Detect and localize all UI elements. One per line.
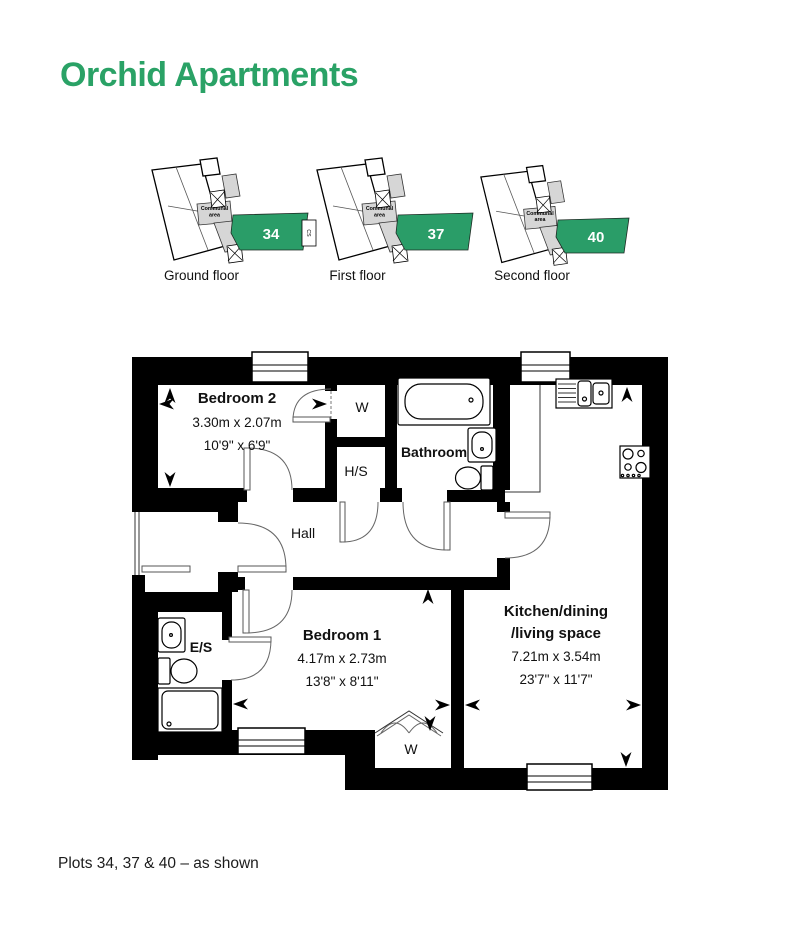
plot-number: 37 <box>428 226 445 243</box>
locator-first-floor: Communal area 37 First floor <box>317 158 473 283</box>
kitchen-name-line1: Kitchen/dining <box>504 603 608 620</box>
dimension-arrow <box>622 387 633 402</box>
floor-locators: CS Communal area 34 Ground floor Communa… <box>130 150 650 290</box>
dimension-arrow <box>621 752 632 767</box>
page-title: Orchid Apartments <box>60 56 358 95</box>
dimension-arrow <box>233 699 248 710</box>
dimension-arrow <box>165 472 176 487</box>
bathroom-label: Bathroom <box>401 444 467 460</box>
bedroom1-imperial: 13'8" x 8'11" <box>305 674 378 689</box>
kitchen-counter-edge <box>505 385 540 492</box>
brochure-page: { "title": "Orchid Apartments", "caption… <box>0 0 800 950</box>
plot-number: 34 <box>263 226 280 243</box>
bathroom-toilet <box>456 466 494 490</box>
hs-label: H/S <box>344 463 367 479</box>
bathroom-basin <box>468 428 496 462</box>
hs-cupboard-door <box>340 502 378 542</box>
hob <box>620 446 650 478</box>
bifold-wardrobe-door <box>375 711 443 736</box>
dimension-arrow <box>423 589 434 604</box>
locator-second-floor: Communal area 40 Second floor <box>481 166 629 283</box>
communal-label: Communal <box>526 211 554 217</box>
shower-tray <box>158 688 222 732</box>
plots-caption: Plots 34, 37 & 40 – as shown <box>58 855 259 873</box>
cs-label: CS <box>305 229 311 237</box>
bedroom2-name: Bedroom 2 <box>198 390 276 407</box>
window <box>238 728 305 754</box>
floor-label: Ground floor <box>164 268 240 283</box>
wardrobe-door <box>293 389 331 422</box>
bathroom-door <box>403 502 450 550</box>
communal-label: area <box>535 217 546 223</box>
dimension-arrow <box>626 700 641 711</box>
bedroom2-door <box>244 448 292 490</box>
wardrobe-bottom-label: W <box>404 741 418 757</box>
bathtub <box>398 378 490 425</box>
bedroom2-imperial: 10'9" x 6'9" <box>204 438 271 453</box>
floor-plan: Bedroom 2 3.30m x 2.07m 10'9" x 6'9" W H… <box>0 340 800 810</box>
plot-number: 40 <box>588 229 605 246</box>
kitchen-imperial: 23'7" x 11'7" <box>519 672 592 687</box>
hall-label: Hall <box>291 525 315 541</box>
kitchen-sink <box>556 379 612 408</box>
ensuite-toilet <box>158 658 197 684</box>
ensuite-basin <box>158 618 185 652</box>
communal-label: area <box>374 213 385 219</box>
dimension-arrow <box>465 700 480 711</box>
entrance-step <box>142 566 190 572</box>
communal-label: area <box>209 213 220 219</box>
bedroom1-metric: 4.17m x 2.73m <box>297 651 386 666</box>
communal-label: Communal <box>201 206 229 212</box>
wardrobe-label: W <box>355 399 369 415</box>
dimension-arrow <box>435 700 450 711</box>
bedroom1-name: Bedroom 1 <box>303 627 381 644</box>
ensuite-door <box>229 637 271 680</box>
floor-label: First floor <box>329 268 386 283</box>
room-labels: Bedroom 2 3.30m x 2.07m 10'9" x 6'9" W H… <box>190 390 608 757</box>
locator-ground-floor: CS Communal area 34 Ground floor <box>152 158 316 283</box>
communal-label: Communal <box>366 206 394 212</box>
kitchen-door <box>505 512 550 558</box>
bedroom1-door <box>243 590 292 633</box>
kitchen-name-line2: /living space <box>511 625 601 642</box>
door-swing-arrow <box>312 399 327 410</box>
floor-label: Second floor <box>494 268 570 283</box>
kitchen-metric: 7.21m x 3.54m <box>511 649 600 664</box>
window <box>527 764 592 790</box>
porch-edge <box>135 512 139 575</box>
front-door <box>238 523 286 572</box>
window <box>521 352 570 382</box>
ensuite-label: E/S <box>190 639 213 655</box>
window <box>252 352 308 382</box>
bedroom2-metric: 3.30m x 2.07m <box>192 415 281 430</box>
